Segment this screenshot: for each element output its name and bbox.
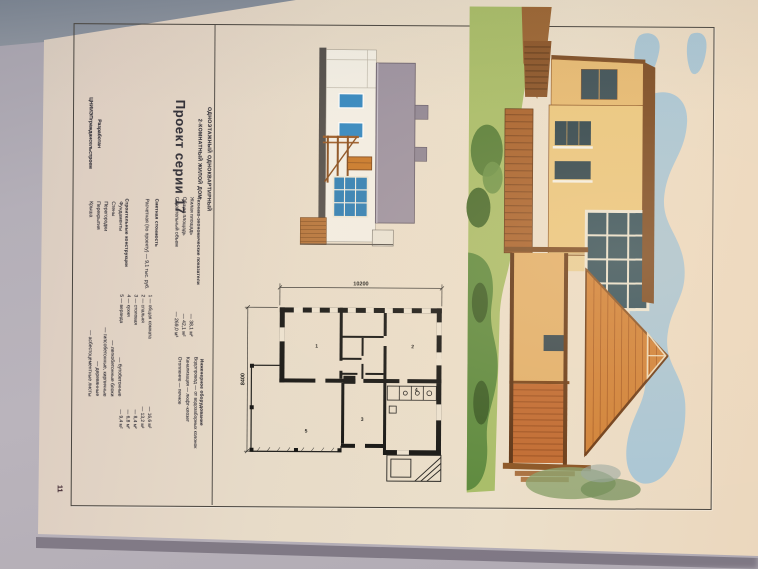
engineering-row: Отопление — печное — [175, 357, 182, 467]
floor-plan-drawing: 10200 8400 — [237, 275, 460, 488]
chimney — [415, 105, 428, 119]
kitchen-fixtures — [387, 386, 436, 413]
page-number: 11 — [56, 485, 63, 492]
outer-walls — [279, 307, 442, 455]
cost-heading: Сметная стоимость — [154, 199, 160, 294]
legend-row: 5 — веранда— 9,4 м² — [116, 294, 123, 428]
engineering-rows: Водопровод — от водозаборных колонок Кан… — [155, 357, 198, 467]
color-rendering — [451, 2, 710, 509]
constructions-heading: Строительные конструкции — [124, 198, 130, 298]
legend-row: 1 — общая комната— 16,6 м² — [145, 295, 152, 429]
engineering-row: Водопровод — от водозаборных колонок — [191, 357, 198, 467]
legend-row: 4 — кухня— 6,8 м² — [124, 294, 131, 428]
roof-band — [375, 63, 415, 223]
stove — [343, 376, 355, 384]
veranda-wall — [511, 253, 564, 383]
credit-line-2: ЦНИИЭПграждансельстроем — [86, 84, 95, 182]
construction-row: Перекрытия— деревянные — [94, 201, 101, 396]
construction-row: Крыша— асбестоцементные листы — [86, 201, 93, 396]
veranda-glazing — [333, 177, 367, 217]
window — [339, 94, 363, 108]
photographed-page: ОДНОЭТАЖНЫЙ ОДНОКВАРТИРНЫЙ 2-КОМНАТНЫЙ Ж… — [0, 0, 758, 569]
window — [339, 123, 363, 138]
construction-row: Перегородки— гипсобетонные, кирпичные — [101, 201, 108, 396]
engineering-heading: Инженерное оборудование — [199, 359, 205, 469]
plan-width-dimension: 10200 — [353, 281, 368, 287]
plan-height-dimension: 8400 — [240, 373, 246, 385]
room-number-1: 1 — [315, 344, 318, 350]
legend-row: 2 — спальня— 13,2 м² — [138, 295, 145, 429]
entrance-door — [348, 157, 372, 170]
legend-row: 3 — столовая— 8,4 м² — [131, 294, 138, 428]
indicators-rows: Жилая площадь— 38,1 м² Общая площадь— 42… — [172, 197, 195, 337]
wood-siding — [504, 109, 533, 253]
construction-row: Стены— легкобетонные блоки — [109, 201, 116, 396]
indicator-row: Жилая площадь— 38,1 м² — [187, 197, 194, 337]
veranda-walls — [249, 364, 342, 453]
room-number-2: 2 — [411, 344, 414, 350]
room-number-5: 5 — [305, 429, 308, 435]
rooms-legend: 1 — общая комната— 16,6 м² 2 — спальня— … — [119, 294, 152, 428]
indicators-heading: Технико-экономические показатели — [196, 197, 202, 297]
room-number-3: 3 — [361, 417, 364, 423]
room-numbers: 1 2 3 4 5 — [305, 344, 419, 436]
credit-line-1: Разработан — [94, 84, 103, 182]
engineering-row: Канализация — люфт-клозет — [183, 357, 190, 467]
chimney — [415, 147, 427, 161]
roof-fascia — [642, 62, 655, 304]
elevation-drawing — [296, 35, 437, 254]
entrance-porch — [387, 455, 441, 481]
indicator-row: Общая площадь— 42,1 м² — [180, 197, 187, 337]
porch-step — [372, 230, 393, 246]
indicator-row: Строительный объем— 269,0 м³ — [173, 197, 180, 337]
room-number-4: 4 — [415, 387, 418, 393]
credit-block: Разработан ЦНИИЭПграждансельстроем — [83, 84, 104, 182]
category-line-1: ОДНОЭТАЖНЫЙ ОДНОКВАРТИРНЫЙ — [203, 93, 213, 225]
page-content: ОДНОЭТАЖНЫЙ ОДНОКВАРТИРНЫЙ 2-КОМНАТНЫЙ Ж… — [0, 0, 758, 569]
